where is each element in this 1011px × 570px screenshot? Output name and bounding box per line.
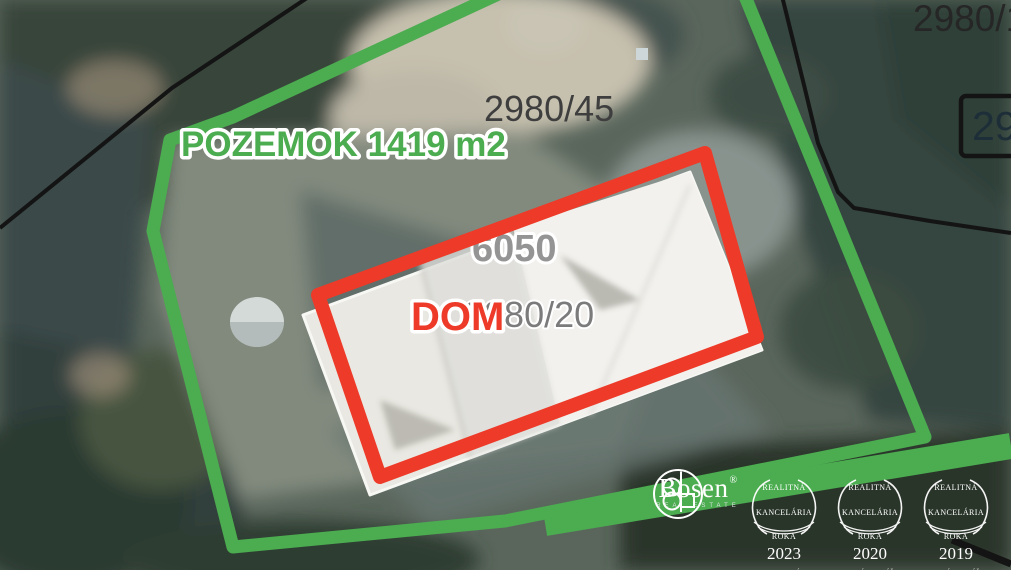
registered-mark: ® bbox=[729, 475, 737, 486]
award-line1: REALITNÁ bbox=[740, 483, 828, 493]
award-year: 2020 bbox=[826, 545, 914, 563]
award-year: 2023 bbox=[740, 545, 828, 563]
brand-bar: Bosen® REAL ESTATE REALITNÁ KANCELÁRIA R… bbox=[640, 462, 1011, 570]
pozemok-label: POZEMOK 1419 m2 bbox=[181, 125, 506, 164]
award-line1: REALITNÁ bbox=[826, 483, 914, 493]
bosen-logo: Bosen® REAL ESTATE bbox=[652, 468, 744, 509]
award-line2: KANCELÁRIA bbox=[826, 508, 914, 518]
bosen-logo-icon bbox=[652, 468, 704, 520]
award-line1: REALITNÁ bbox=[912, 483, 1000, 493]
parcel-label-2980-1: 2980/1 bbox=[913, 0, 1011, 39]
parcel-label-2980-45: 2980/45 bbox=[484, 88, 614, 129]
award-badge-2020: REALITNÁ KANCELÁRIA ROKA 2020 ABSOLÚTNY … bbox=[826, 468, 914, 568]
award-badge-2023: REALITNÁ KANCELÁRIA ROKA 2023 BRATISLAVS… bbox=[740, 468, 828, 568]
award-line2: KANCELÁRIA bbox=[912, 508, 1000, 518]
award-line3: ROKA bbox=[912, 532, 1000, 542]
boxed-parcel-number: 29 bbox=[972, 103, 1011, 149]
award-line3: ROKA bbox=[740, 532, 828, 542]
award-year: 2019 bbox=[912, 545, 1000, 563]
dome-structure bbox=[230, 297, 284, 347]
award-badge-2019: REALITNÁ KANCELÁRIA ROKA 2019 ABSOLÚTNY … bbox=[912, 468, 1000, 568]
dom-label: DOM bbox=[411, 295, 504, 339]
aerial-property-map: 2980/45 2980/1 6050 2980/20 DOM POZEMOK … bbox=[0, 0, 1011, 570]
award-line3: ROKA bbox=[826, 532, 914, 542]
award-line2: KANCELÁRIA bbox=[740, 508, 828, 518]
small-roof-highlight bbox=[636, 48, 648, 60]
